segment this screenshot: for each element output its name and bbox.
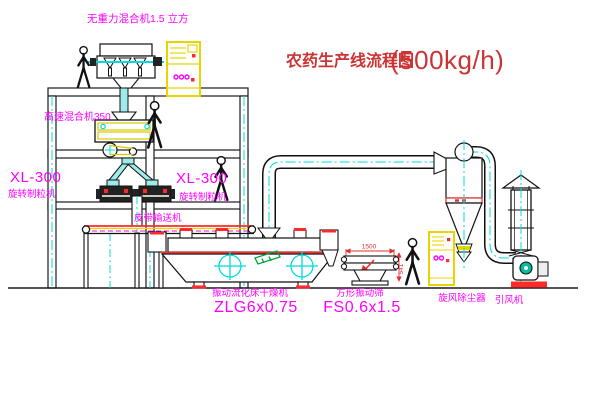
mixer-downpipe bbox=[120, 88, 128, 112]
label-high-speed-mixer: 高速混合机350 bbox=[44, 110, 111, 123]
label-belt-conveyor: 皮带输送机 bbox=[134, 212, 182, 224]
exhaust-duct bbox=[269, 152, 447, 240]
dim-sieve-length: 1500 bbox=[362, 244, 377, 251]
label-sieve-model: FS0.6x1.5 bbox=[323, 299, 400, 316]
dim-sieve-height: 541 bbox=[398, 263, 405, 274]
control-cabinet-bottom bbox=[429, 232, 454, 285]
label-granulator-left: 旋转制粒机 bbox=[8, 188, 56, 200]
label-granulator-right: 旋转制粒机 bbox=[179, 191, 227, 203]
square-vibrating-sieve bbox=[341, 249, 399, 285]
person-top-floor bbox=[78, 47, 89, 88]
rotary-granulator-left bbox=[96, 180, 136, 202]
induced-draft-fan bbox=[511, 256, 548, 288]
label-top-mixer: 无重力混合机1.5 立方 bbox=[87, 12, 189, 25]
person-ground-floor bbox=[406, 239, 419, 284]
label-dryer-model: ZLG6x0.75 bbox=[214, 299, 298, 316]
page-title-capacity: (500kg/h) bbox=[390, 45, 504, 75]
label-sieve-name: 方形振动筛 bbox=[336, 287, 384, 299]
gravity-free-mixer bbox=[88, 44, 164, 88]
label-fan: 引风机 bbox=[495, 294, 524, 306]
control-cabinet-top bbox=[167, 42, 200, 96]
label-xl300-right: XL-300 bbox=[176, 170, 227, 187]
cad-drawing: 无重力混合机1.5 立方 农药生产线流程图 (500kg/h) 高速混合机350… bbox=[0, 0, 600, 403]
label-cyclone: 旋风除尘器 bbox=[438, 292, 486, 304]
label-xl300-left: XL-300 bbox=[10, 169, 61, 186]
label-dryer-name: 振动流化床干燥机 bbox=[212, 287, 289, 299]
process-flow-diagram: 无重力混合机1.5 立方 农药生产线流程图 (500kg/h) 高速混合机350… bbox=[0, 0, 600, 403]
